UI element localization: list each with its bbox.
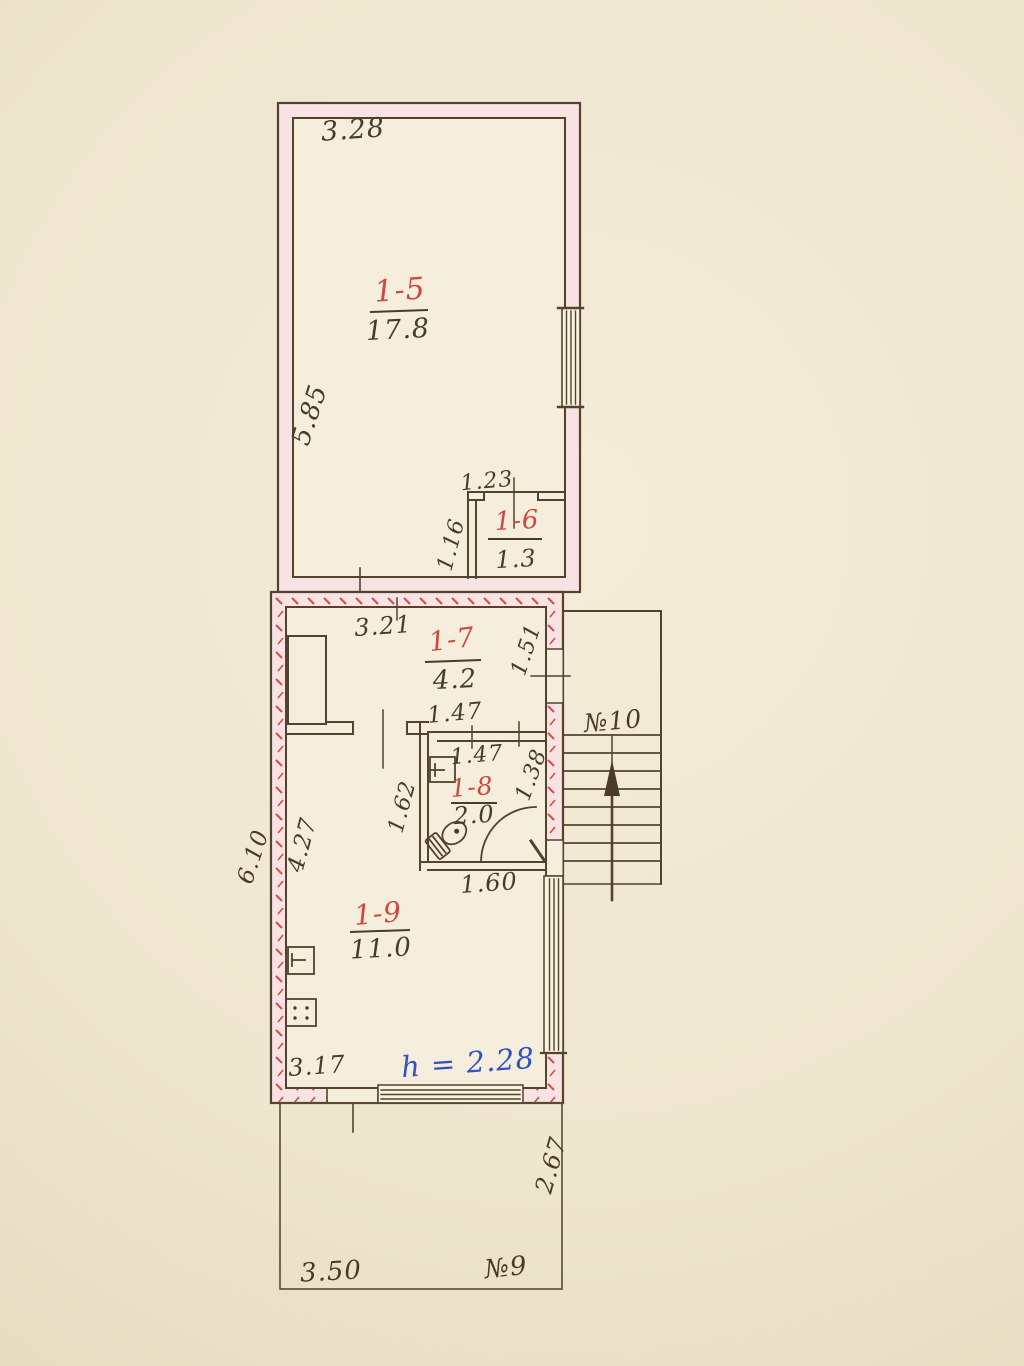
room-label-1-6-underline xyxy=(488,538,542,540)
dim-room18-bottom: 1.60 xyxy=(460,869,519,897)
area-room17: 4.2 xyxy=(432,666,478,694)
area-room18: 2.0 xyxy=(453,802,495,828)
stairs-up-arrow-icon xyxy=(604,735,620,900)
door-gap-1-9 xyxy=(327,1088,378,1132)
room-label-1-7: 1-7 xyxy=(427,624,476,656)
plan-drawing xyxy=(0,0,1024,1366)
door-gap-1-8 xyxy=(546,840,563,876)
dim-porch-width: 3.50 xyxy=(299,1257,362,1286)
window-1-5-icon xyxy=(558,308,583,407)
room-label-1-9: 1-9 xyxy=(353,898,403,930)
room-label-1-5: 1-5 xyxy=(373,274,426,308)
dim-room17-width: 3.21 xyxy=(354,612,413,640)
room-label-1-6: 1-6 xyxy=(494,507,540,535)
chimney xyxy=(288,636,326,724)
dim-room16-width: 1.23 xyxy=(460,469,515,496)
porch-label: №9 xyxy=(483,1253,529,1283)
window-1-9-bottom-icon xyxy=(378,1085,523,1103)
area-room16: 1.3 xyxy=(495,546,537,572)
area-room19: 11.0 xyxy=(349,934,412,963)
floor-plan-photo: 3.28 5.85 1-5 17.8 1.23 1.16 1-6 1.3 3.2… xyxy=(0,0,1024,1366)
stairwell xyxy=(563,611,661,900)
room-label-1-8: 1-8 xyxy=(450,773,495,801)
stairwell-label: №10 xyxy=(583,706,643,736)
dim-room19-bottom: 3.17 xyxy=(288,1052,347,1080)
dim-room18-width: 1.47 xyxy=(450,743,505,770)
area-room15: 17.8 xyxy=(365,315,430,345)
window-1-9-right-icon xyxy=(541,876,566,1053)
dim-room15-width: 3.28 xyxy=(320,114,386,145)
dim-hall-width: 1.47 xyxy=(426,700,483,728)
